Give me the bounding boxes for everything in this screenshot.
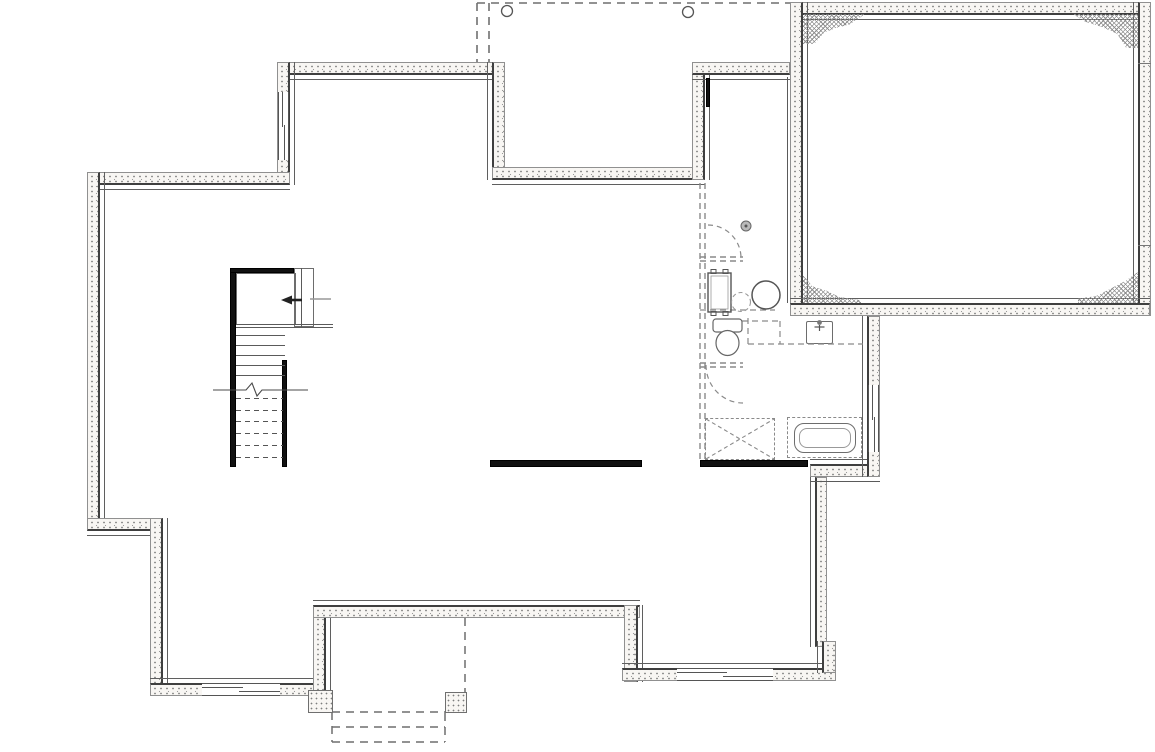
wall-upper-left-horizontal — [87, 172, 290, 185]
window-bath-right — [868, 385, 879, 452]
beam-center — [490, 460, 642, 467]
beam-bath — [700, 460, 808, 467]
stair-tread — [236, 365, 285, 366]
post-mark-top — [706, 78, 710, 107]
bathtub-inner — [799, 428, 851, 448]
wall-left-main — [87, 172, 100, 531]
softener-dashed-circle — [732, 293, 751, 312]
stair-landing — [236, 273, 296, 325]
stair-tread-dashed — [236, 398, 283, 399]
wall-top-left — [277, 62, 505, 75]
stair-bulkhead — [294, 268, 314, 327]
garage-corner-pad-top-right — [1073, 14, 1138, 48]
door-swing-arc-upper — [708, 225, 741, 258]
symbol-overlay — [0, 0, 1155, 752]
floor-drain-center — [745, 225, 748, 228]
stair-landing-edge-1 — [236, 324, 333, 325]
garage-corner-pad-bottom-right — [1078, 272, 1138, 303]
wall-garage-left — [790, 2, 803, 316]
stair-tread — [236, 375, 285, 376]
wall-garage-top — [790, 2, 1150, 15]
wall-garage-bottom — [790, 303, 1150, 316]
floor-drain — [741, 221, 751, 231]
shower-rough-in — [705, 418, 775, 460]
stair-landing-edge-2 — [236, 327, 333, 328]
stair-tread — [236, 345, 285, 346]
deck-dashed-outline — [332, 618, 465, 742]
wall-bumpout-left — [313, 605, 326, 692]
wall-top-right — [692, 62, 790, 75]
stair-tread-dashed — [236, 421, 283, 422]
stair-tread — [236, 355, 285, 356]
wall-porch-notch-bottom — [492, 167, 705, 180]
wall-garage-right — [1138, 2, 1151, 316]
stair-tread-dashed — [236, 457, 283, 458]
wall-bumpout-bottom — [313, 605, 640, 618]
furnace — [708, 270, 731, 316]
stair-bulkhead-line — [301, 268, 302, 327]
door-swing-arc-lower — [706, 365, 743, 403]
foundation-pier-left — [308, 690, 333, 713]
stair-tread-dashed — [236, 445, 283, 446]
water-heater — [752, 281, 780, 309]
laundry-tub — [806, 321, 833, 344]
stair-break-line — [213, 383, 308, 396]
toilet — [713, 319, 742, 356]
porch-post-right — [683, 7, 694, 18]
garage-left-interior-face-line — [787, 77, 788, 303]
garage-corner-pad-top-left — [803, 14, 865, 44]
window-bottom-right — [677, 668, 773, 681]
wall-left-lower — [150, 518, 163, 696]
stair-tread-dashed — [236, 410, 283, 411]
deck-pier — [445, 692, 467, 713]
stair-wall-right — [282, 360, 287, 467]
wall-bath-bottom-inner-line — [810, 481, 880, 482]
wall-right-lower — [815, 477, 827, 647]
wall-right-lower-jog — [822, 641, 836, 673]
garage-wall-joint-lower — [1138, 245, 1151, 246]
floor-plan — [0, 0, 1155, 752]
wall-porch-notch-left — [492, 62, 505, 180]
window-left-wall — [278, 92, 289, 160]
stair-tread-dashed — [236, 433, 283, 434]
porch-post-left — [502, 6, 513, 17]
garage-wall-joint-upper — [1138, 63, 1151, 64]
window-bottom-left — [202, 683, 280, 696]
porch-dashed-outline — [477, 3, 790, 62]
stair-tread — [236, 335, 285, 336]
